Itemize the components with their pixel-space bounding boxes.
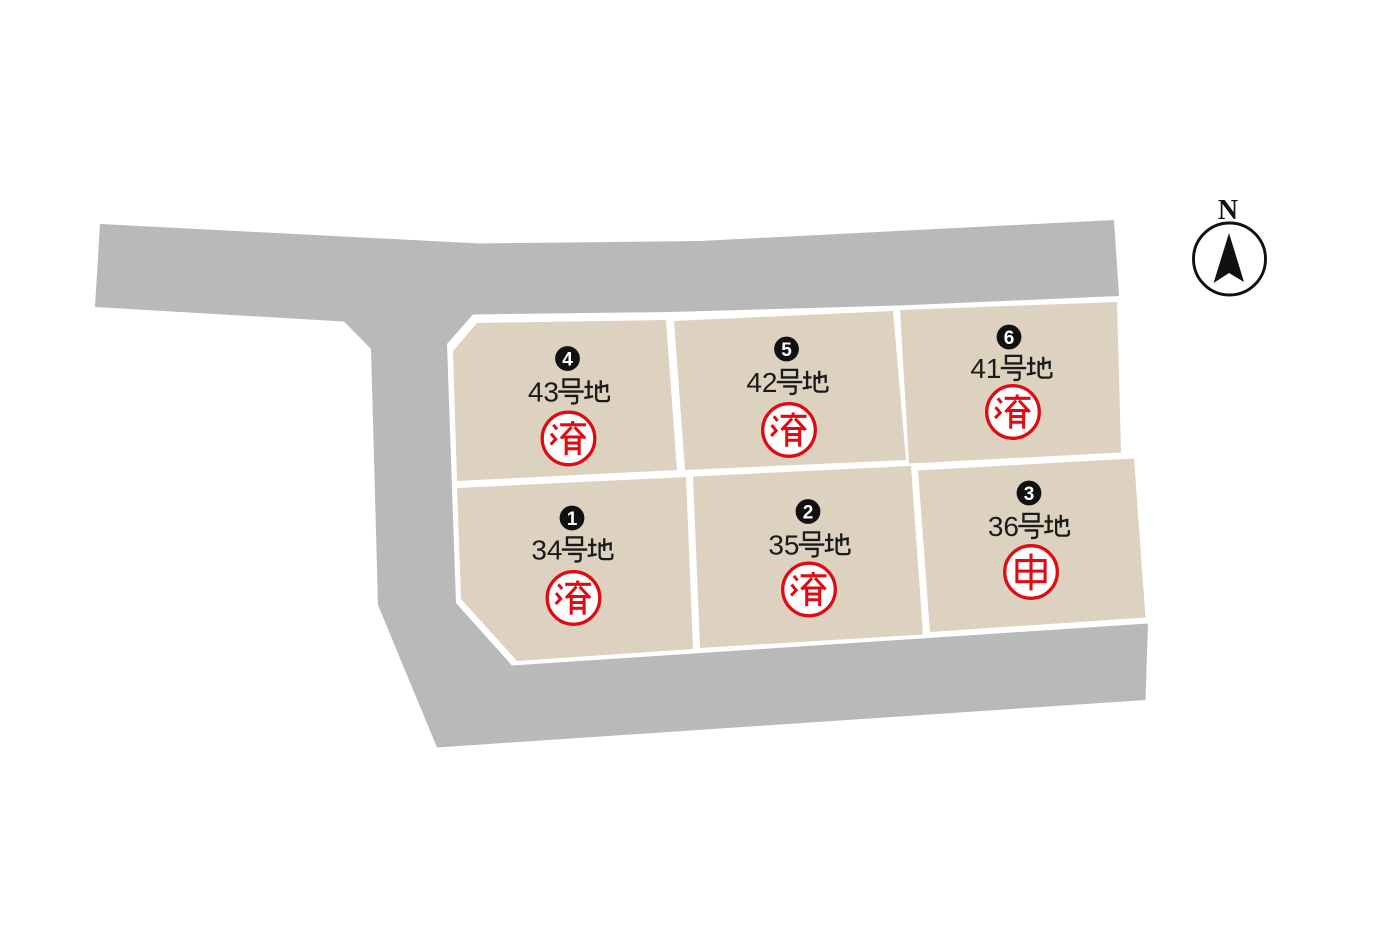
svg-text:4: 4 (562, 349, 573, 370)
svg-text:5: 5 (781, 340, 792, 361)
svg-text:N: N (1218, 195, 1238, 226)
svg-text:42: 42 (746, 367, 777, 398)
svg-text:34: 34 (531, 535, 562, 566)
svg-text:36: 36 (988, 511, 1019, 542)
svg-text:1: 1 (567, 509, 578, 530)
svg-text:2: 2 (803, 502, 814, 523)
svg-text:43: 43 (528, 377, 559, 408)
svg-text:3: 3 (1024, 484, 1035, 505)
svg-text:6: 6 (1004, 328, 1015, 349)
svg-text:41: 41 (970, 353, 1001, 384)
svg-text:35: 35 (768, 530, 799, 561)
